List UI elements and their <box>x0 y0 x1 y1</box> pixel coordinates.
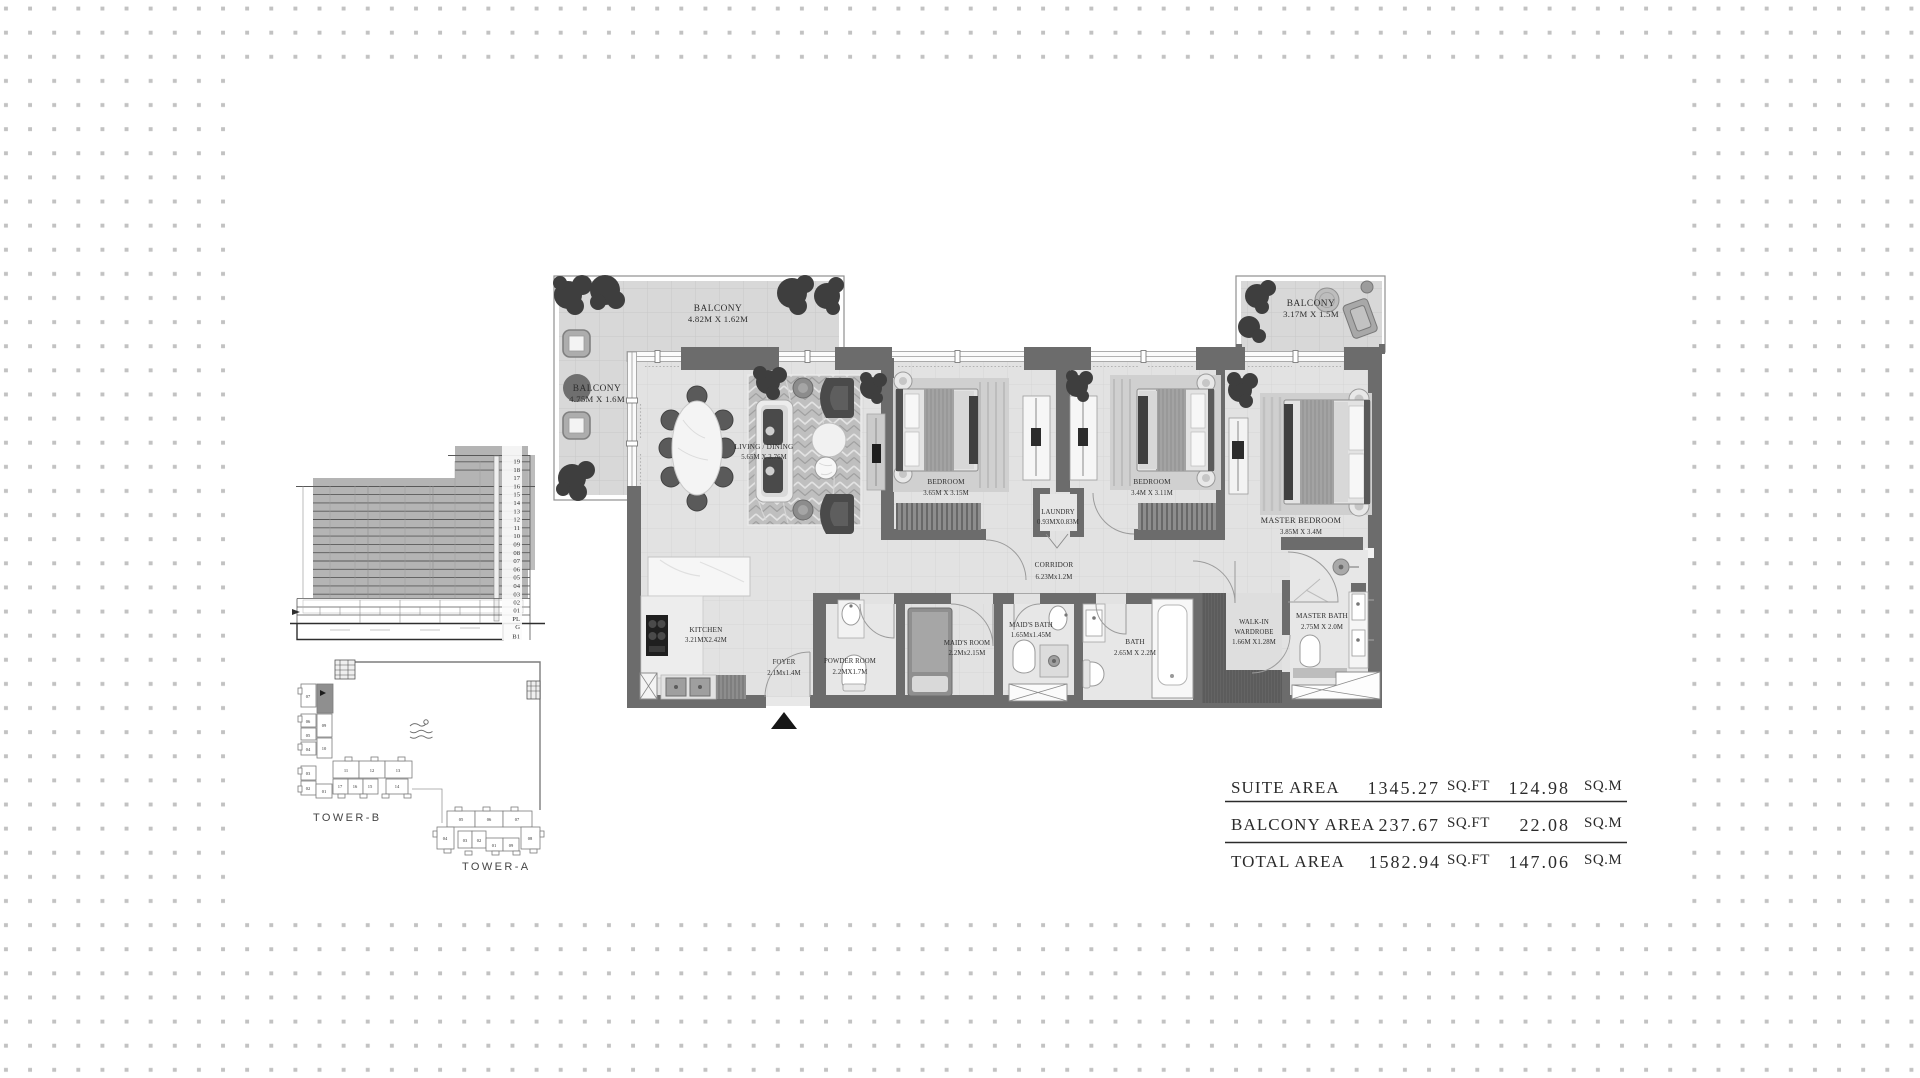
svg-text:WALK-IN: WALK-IN <box>1239 619 1269 626</box>
svg-text:3.65M X 3.15M: 3.65M X 3.15M <box>923 490 968 497</box>
svg-text:2.2MX1.7M: 2.2MX1.7M <box>833 669 868 676</box>
svg-text:04: 04 <box>443 836 448 841</box>
svg-text:06: 06 <box>487 817 492 822</box>
svg-text:SQ.FT: SQ.FT <box>1447 852 1490 868</box>
svg-text:4.82M X 1.62M: 4.82M X 1.62M <box>688 314 748 324</box>
svg-text:124.98: 124.98 <box>1509 778 1571 798</box>
svg-text:1.65Mx1.45M: 1.65Mx1.45M <box>1011 632 1051 639</box>
svg-text:13: 13 <box>396 768 401 773</box>
svg-text:SQ.M: SQ.M <box>1584 778 1622 794</box>
svg-text:02: 02 <box>513 600 520 607</box>
svg-text:09: 09 <box>509 843 514 848</box>
svg-text:1345.27: 1345.27 <box>1368 778 1441 798</box>
svg-text:MASTER BEDROOM: MASTER BEDROOM <box>1261 516 1342 525</box>
svg-text:KITCHEN: KITCHEN <box>690 626 724 634</box>
svg-text:G: G <box>515 624 520 631</box>
svg-text:2.65M X 2.2M: 2.65M X 2.2M <box>1114 650 1156 657</box>
svg-text:SQ.FT: SQ.FT <box>1447 815 1490 831</box>
svg-text:TOWER-A: TOWER-A <box>462 861 531 873</box>
svg-text:02: 02 <box>306 786 311 791</box>
svg-text:18: 18 <box>513 467 520 474</box>
svg-text:12: 12 <box>513 517 520 524</box>
svg-text:17: 17 <box>338 784 343 789</box>
svg-text:01: 01 <box>322 789 327 794</box>
svg-text:BALCONY AREA: BALCONY AREA <box>1231 815 1375 834</box>
svg-text:SQ.FT: SQ.FT <box>1447 778 1490 794</box>
svg-text:10: 10 <box>513 533 520 540</box>
svg-text:03: 03 <box>513 591 520 598</box>
svg-text:02: 02 <box>477 838 482 843</box>
svg-text:SUITE AREA: SUITE AREA <box>1231 778 1340 797</box>
svg-text:MAID'S ROOM: MAID'S ROOM <box>944 640 990 647</box>
svg-text:19: 19 <box>513 459 520 466</box>
svg-text:3.17M X 1.5M: 3.17M X 1.5M <box>1283 309 1339 319</box>
svg-text:3.85M X 3.4M: 3.85M X 3.4M <box>1280 529 1322 536</box>
svg-text:BALCONY: BALCONY <box>573 384 621 394</box>
svg-text:10: 10 <box>322 746 327 751</box>
svg-text:16: 16 <box>353 784 358 789</box>
svg-text:11: 11 <box>344 768 348 773</box>
svg-text:03: 03 <box>306 771 311 776</box>
svg-text:5.65M X 3.76M: 5.65M X 3.76M <box>741 454 786 461</box>
svg-text:06: 06 <box>306 719 311 724</box>
svg-text:16: 16 <box>513 483 520 490</box>
svg-text:07: 07 <box>515 817 520 822</box>
svg-text:BALCONY: BALCONY <box>694 304 742 314</box>
svg-text:03: 03 <box>463 838 468 843</box>
svg-text:22.08: 22.08 <box>1520 815 1571 835</box>
svg-text:147.06: 147.06 <box>1509 852 1571 872</box>
svg-text:4.75M X 1.6M: 4.75M X 1.6M <box>569 394 625 404</box>
svg-text:09: 09 <box>322 723 327 728</box>
svg-text:FOYER: FOYER <box>773 659 796 666</box>
svg-text:2.75M X 2.0M: 2.75M X 2.0M <box>1301 624 1343 631</box>
svg-text:14: 14 <box>395 784 400 789</box>
svg-text:05: 05 <box>459 817 464 822</box>
svg-text:2.1Mx1.4M: 2.1Mx1.4M <box>767 670 800 677</box>
svg-text:3.4M X 3.11M: 3.4M X 3.11M <box>1131 490 1173 497</box>
svg-text:04: 04 <box>513 583 520 590</box>
svg-text:09: 09 <box>513 542 520 549</box>
svg-text:CORRIDOR: CORRIDOR <box>1035 561 1074 569</box>
svg-text:05: 05 <box>306 733 311 738</box>
svg-text:04: 04 <box>306 747 311 752</box>
svg-text:LAUNDRY: LAUNDRY <box>1041 509 1075 516</box>
svg-text:1.66M X1.28M: 1.66M X1.28M <box>1232 639 1276 646</box>
svg-text:08: 08 <box>513 550 520 557</box>
svg-text:11: 11 <box>514 525 520 532</box>
svg-text:237.67: 237.67 <box>1379 815 1441 835</box>
svg-text:SQ.M: SQ.M <box>1584 815 1622 831</box>
svg-text:BALCONY: BALCONY <box>1287 299 1335 309</box>
svg-text:17: 17 <box>513 475 520 482</box>
svg-text:05: 05 <box>513 575 520 582</box>
svg-text:12: 12 <box>370 768 375 773</box>
svg-text:BATH: BATH <box>1125 638 1145 646</box>
svg-text:0.93MX0.83M: 0.93MX0.83M <box>1037 519 1079 526</box>
svg-text:6.23Mx1.2M: 6.23Mx1.2M <box>1036 574 1073 581</box>
svg-text:2.2Mx2.15M: 2.2Mx2.15M <box>949 650 986 657</box>
svg-text:07: 07 <box>513 558 520 565</box>
svg-text:13: 13 <box>513 508 520 515</box>
svg-text:POWDER ROOM: POWDER ROOM <box>824 658 876 665</box>
svg-text:B1: B1 <box>512 634 520 641</box>
svg-text:07: 07 <box>306 694 311 699</box>
svg-text:3.21MX2.42M: 3.21MX2.42M <box>685 637 727 644</box>
svg-text:01: 01 <box>513 608 520 615</box>
svg-text:01: 01 <box>492 843 497 848</box>
svg-text:SQ.M: SQ.M <box>1584 852 1622 868</box>
svg-text:15: 15 <box>368 784 373 789</box>
svg-text:LIVING / DINING: LIVING / DINING <box>735 443 794 451</box>
svg-text:14: 14 <box>513 500 520 507</box>
svg-text:06: 06 <box>513 566 520 573</box>
svg-text:TOTAL AREA: TOTAL AREA <box>1231 852 1345 871</box>
svg-text:PL: PL <box>512 616 520 623</box>
svg-text:TOWER-B: TOWER-B <box>313 812 382 824</box>
svg-text:08: 08 <box>528 836 533 841</box>
svg-text:WARDROBE: WARDROBE <box>1235 629 1274 636</box>
svg-text:15: 15 <box>513 492 520 499</box>
svg-text:1582.94: 1582.94 <box>1369 852 1442 872</box>
svg-text:MAID'S BATH: MAID'S BATH <box>1009 622 1053 629</box>
svg-text:BEDROOM: BEDROOM <box>1133 478 1171 486</box>
svg-text:MASTER BATH: MASTER BATH <box>1296 612 1348 620</box>
svg-text:BEDROOM: BEDROOM <box>927 478 965 486</box>
